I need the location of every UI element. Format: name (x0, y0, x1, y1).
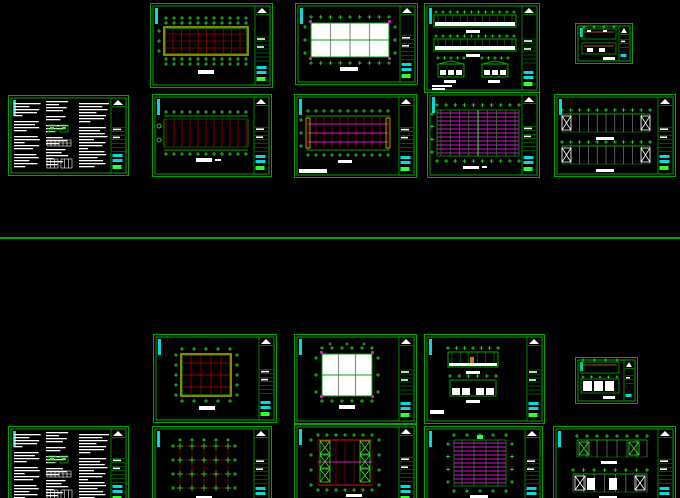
general-notes-sheet-a[interactable] (8, 95, 129, 176)
drawing-content (157, 16, 248, 74)
title-block (254, 97, 268, 174)
title-block (522, 6, 536, 90)
sheet-logo-icon (401, 429, 411, 434)
drawing-content (432, 10, 516, 90)
drawing-content (309, 433, 381, 497)
title-block (619, 26, 629, 61)
roof-plan-sheet-b-svg (294, 334, 417, 424)
drawing-content (157, 110, 248, 162)
general-notes-sheet-a-svg (8, 95, 129, 176)
section-detail-sheet-b-svg (575, 357, 638, 404)
foundation-plan-sheet-a[interactable] (150, 3, 273, 88)
title-block (111, 98, 125, 173)
sheet-logo-icon (524, 8, 534, 13)
drawing-content (571, 434, 649, 498)
roof-plan-sheet-b[interactable] (294, 334, 417, 424)
title-block (399, 427, 413, 498)
bracing-elevation-sheet-b[interactable] (553, 426, 676, 498)
roof-plan-sheet-a[interactable] (295, 3, 418, 85)
drawing-content (560, 108, 652, 172)
title-block (658, 97, 672, 174)
general-notes-sheet-b-svg (8, 426, 129, 498)
sheet-logo-icon (256, 431, 266, 436)
roof-framing-sheet-a[interactable] (294, 94, 417, 178)
drawing-content (430, 103, 521, 169)
title-block (399, 337, 413, 421)
title-block (525, 429, 539, 498)
drawing-content (582, 26, 616, 61)
sheet-logo-icon (257, 8, 267, 13)
column-layout-sheet-b-svg (152, 426, 272, 498)
drawing-content (430, 346, 500, 414)
drawing-content (14, 101, 109, 168)
cad-model-space[interactable] (0, 0, 680, 498)
general-notes-sheet-b[interactable] (8, 426, 129, 498)
sheet-logo-icon (113, 100, 123, 105)
foundation-plan-sheet-b[interactable] (153, 334, 277, 423)
elevation-sheet-a[interactable] (424, 3, 540, 93)
drawing-content (14, 432, 109, 498)
foundation-plan-sheet-a-svg (150, 3, 273, 88)
drawing-content (581, 359, 619, 400)
sheet-logo-icon (660, 99, 670, 104)
bracing-elevation-sheet-a-svg (554, 94, 676, 177)
elevation-sheet-b[interactable] (424, 334, 545, 424)
title-block (400, 6, 414, 82)
sheet-logo-icon (529, 339, 539, 344)
foundation-plan-sheet-b-svg (153, 334, 277, 423)
bracing-elevation-sheet-a[interactable] (554, 94, 676, 177)
roof-plan-sheet-a-svg (295, 3, 418, 85)
section-detail-sheet-b[interactable] (575, 357, 638, 404)
drawing-content (446, 433, 514, 498)
layout-divider-line (0, 237, 680, 239)
sheet-border (151, 4, 273, 88)
drawing-content (314, 343, 380, 410)
sheet-logo-icon (113, 431, 123, 436)
sheet-border (295, 95, 417, 178)
drawing-content (171, 438, 237, 498)
sheet-logo-icon (261, 339, 271, 344)
purlin-layout-sheet-b-svg (424, 426, 543, 498)
column-layout-sheet-a[interactable] (152, 94, 272, 177)
title-block (624, 360, 634, 401)
bracing-plan-sheet-b-svg (294, 424, 417, 498)
sheet-logo-icon (256, 99, 266, 104)
drawing-content (299, 109, 390, 173)
title-block (527, 337, 541, 421)
drawing-content (303, 15, 397, 71)
sheet-logo-icon (524, 97, 534, 102)
title-block (399, 97, 413, 175)
column-layout-sheet-a-svg (152, 94, 272, 177)
bracing-plan-sheet-b[interactable] (294, 424, 417, 498)
sheet-logo-icon (626, 362, 632, 367)
purlin-layout-sheet-b[interactable] (424, 426, 543, 498)
title-block (522, 95, 536, 175)
section-detail-sheet-a-svg (575, 23, 633, 64)
title-block (255, 6, 269, 85)
section-detail-sheet-a[interactable] (575, 23, 633, 64)
sheet-logo-icon (660, 431, 670, 436)
sheet-logo-icon (401, 99, 411, 104)
purlin-layout-sheet-a[interactable] (427, 92, 540, 178)
title-block (254, 429, 268, 498)
sheet-logo-icon (621, 28, 627, 33)
sheet-logo-icon (527, 431, 537, 436)
elevation-sheet-a-svg (424, 3, 540, 93)
bracing-elevation-sheet-b-svg (553, 426, 676, 498)
purlin-layout-sheet-a-svg (427, 92, 540, 178)
roof-framing-sheet-a-svg (294, 94, 417, 178)
title-block (658, 429, 672, 498)
sheet-border (295, 425, 417, 498)
column-layout-sheet-b[interactable] (152, 426, 272, 498)
drawing-content (174, 347, 239, 410)
sheet-logo-icon (401, 339, 411, 344)
sheet-logo-icon (402, 8, 412, 13)
title-block (111, 429, 125, 498)
title-block (259, 337, 273, 420)
elevation-sheet-b-svg (424, 334, 545, 424)
